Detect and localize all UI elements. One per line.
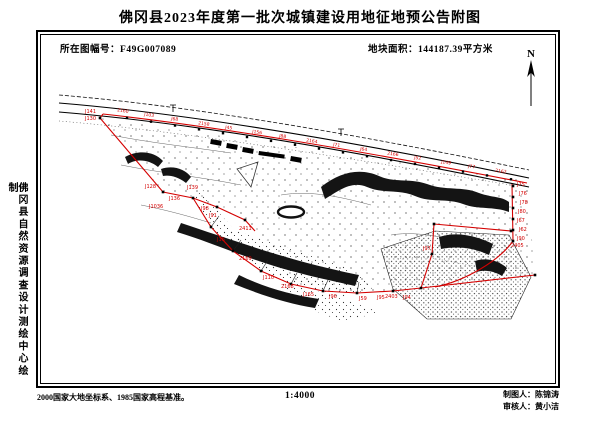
road-point-label: J45 <box>224 124 233 131</box>
boundary-point-label: J78 <box>519 200 528 206</box>
road-point-label: J64 <box>359 146 368 153</box>
boundary-point-label: J62 <box>518 227 527 233</box>
road-point-label: J71 <box>332 142 341 149</box>
boundary-point-label: J1036 <box>148 204 163 210</box>
boundary-point-label: J75 <box>516 182 525 188</box>
boundary-point-label: 2403 <box>385 294 398 300</box>
boundary-point-label: 2168 <box>281 284 294 290</box>
boundary-point-label: J165 <box>302 292 314 298</box>
boundary-point-label: J67 <box>516 218 525 224</box>
drafter-label: 制图人： <box>503 390 535 399</box>
boundary-point-label: 2405 <box>511 243 524 249</box>
boundary-point-label: J136 <box>168 196 180 202</box>
boundary-point-label: J97 <box>422 246 431 252</box>
road-point-label: 2164 <box>306 138 318 146</box>
road-point-label: J156 <box>251 129 263 137</box>
map-canvas: J141J130J128J136J1036J139J98J912411J1621… <box>41 35 555 383</box>
road-point-label: J77 <box>467 163 476 170</box>
boundary-point-label: J76 <box>518 191 527 197</box>
boundary-point-label: 2169 <box>239 256 252 262</box>
boundary-point-label: J95 <box>376 295 385 301</box>
drafter-name: 陈锦涛 <box>535 390 559 399</box>
pond <box>278 207 304 218</box>
reviewer-name: 黄小洁 <box>535 402 559 411</box>
boundary-point-label: J96 <box>328 294 337 300</box>
drafter-line: 制图人：陈锦涛 <box>503 389 559 401</box>
reviewer-label: 审核人： <box>503 402 535 411</box>
road-point-label: J52 <box>413 155 422 162</box>
road-point-label: 2162 <box>495 168 507 176</box>
boundary-point-label: J80 <box>517 209 526 215</box>
boundary-point-label: J91 <box>208 213 217 219</box>
boundary-point-label: J130 <box>84 116 96 122</box>
boundary-point-label: J141 <box>84 109 96 115</box>
reviewer-line: 审核人：黄小洁 <box>503 401 559 413</box>
boundary-point-label: J90 <box>516 236 525 242</box>
boundary-point-label: J98 <box>200 206 209 212</box>
boundary-point-label: J16 <box>216 237 225 243</box>
boundary-point-label: 2411 <box>239 226 252 232</box>
boundary-point-label: J110 <box>262 275 274 281</box>
page-title: 佛冈县2023年度第一批次城镇建设用地征地预公告附图 <box>0 7 600 27</box>
boundary-point-label: J139 <box>186 185 198 191</box>
map-frame: 所在图幅号：F49G007089 地块面积：144187.39平方米 N <box>36 30 560 388</box>
boundary-point-label: J94 <box>402 295 411 301</box>
road-point-label: J149 <box>440 159 452 167</box>
road-point-label: 2160 <box>117 107 129 115</box>
boundary-point-label: J59 <box>358 296 367 302</box>
boundary-point-label: J128 <box>144 184 156 190</box>
producer-vertical-caption: 佛冈县自然资源调查设计测绘中心绘制 <box>6 182 26 388</box>
credits-block: 制图人：陈锦涛 审核人：黄小洁 <box>503 389 559 414</box>
road-point-label: J88 <box>278 133 287 140</box>
road-point-label: J68 <box>170 116 179 123</box>
